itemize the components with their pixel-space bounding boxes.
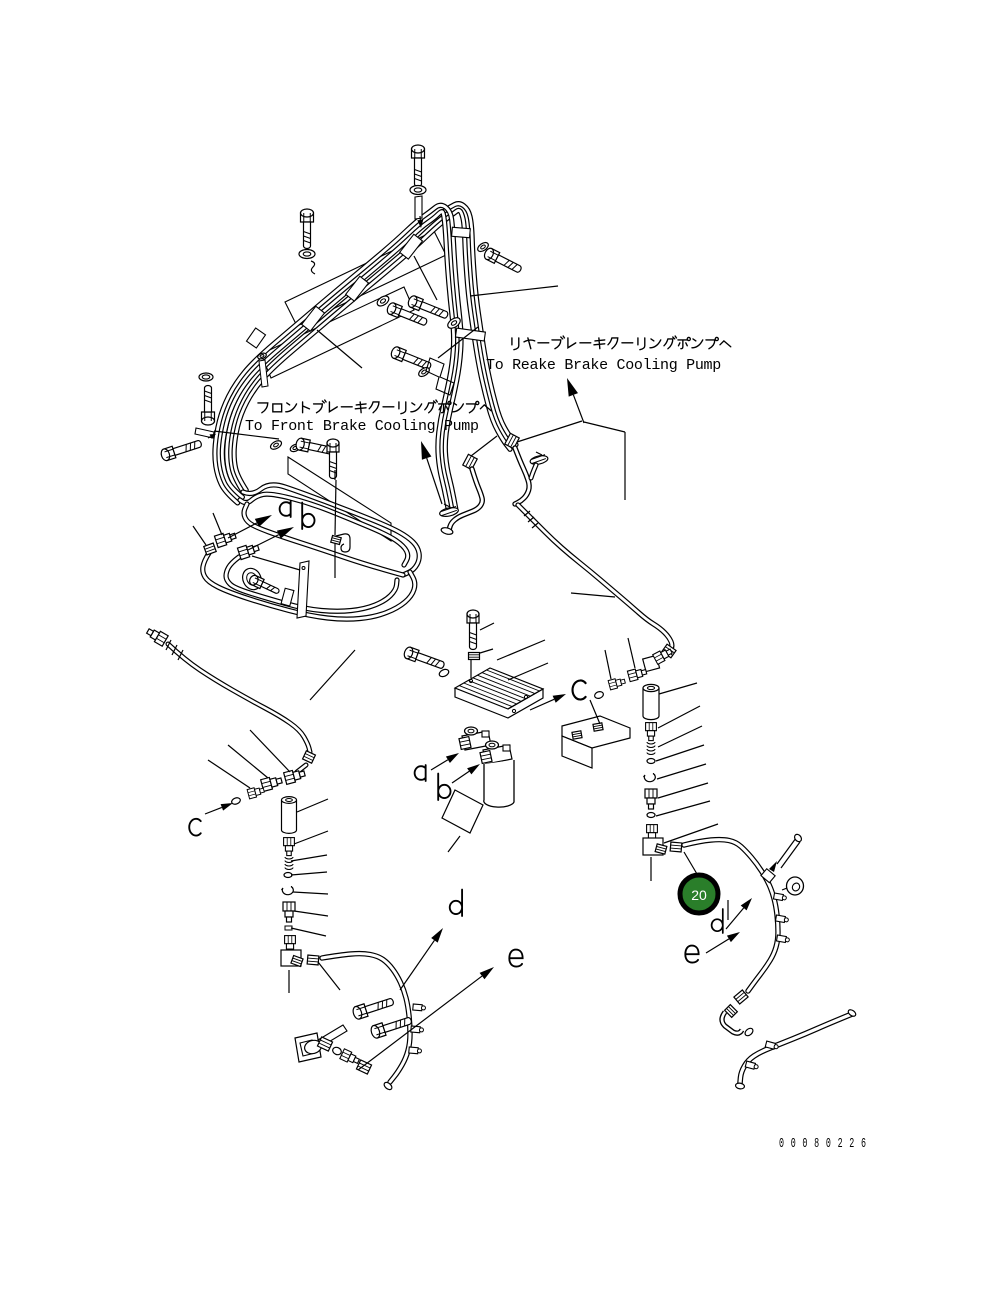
svg-text:To Front Brake Cooling Pump: To Front Brake Cooling Pump [245, 418, 479, 435]
svg-text:00080226: 00080226 [779, 1137, 873, 1151]
svg-text:To Reake Brake Cooling Pump: To Reake Brake Cooling Pump [486, 357, 721, 374]
svg-text:20: 20 [691, 887, 707, 903]
